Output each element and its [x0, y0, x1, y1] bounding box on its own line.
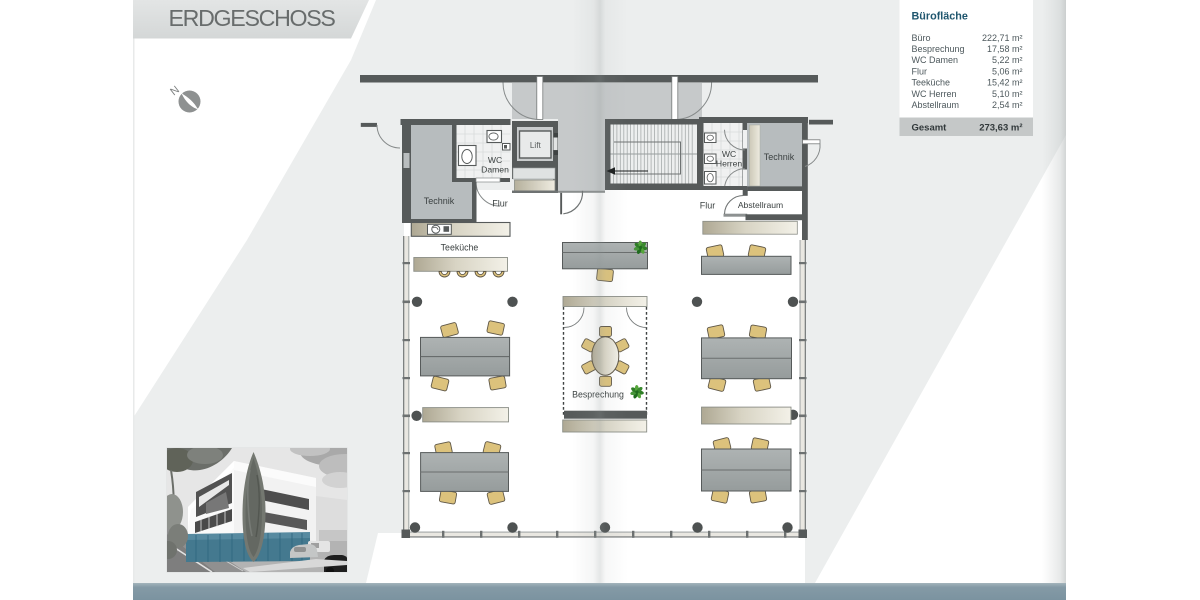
svg-text:5,06 m²: 5,06 m² — [992, 66, 1023, 76]
svg-text:Abstellraum: Abstellraum — [912, 100, 960, 110]
svg-text:ERDGESCHOSS: ERDGESCHOSS — [169, 5, 336, 31]
svg-text:5,22 m²: 5,22 m² — [992, 55, 1023, 65]
svg-text:2,54 m²: 2,54 m² — [992, 100, 1023, 110]
svg-text:17,58 m²: 17,58 m² — [987, 44, 1023, 54]
svg-text:Herren: Herren — [716, 159, 742, 169]
svg-text:Büro: Büro — [912, 33, 931, 43]
svg-text:273,63 m²: 273,63 m² — [979, 123, 1022, 134]
svg-text:Flur: Flur — [912, 66, 928, 76]
svg-text:Damen: Damen — [481, 165, 509, 175]
svg-text:Besprechung: Besprechung — [912, 44, 965, 54]
svg-text:Technik: Technik — [764, 152, 795, 162]
svg-text:Flur: Flur — [492, 199, 508, 209]
svg-text:15,42 m²: 15,42 m² — [987, 78, 1023, 88]
svg-text:Lift: Lift — [530, 141, 542, 150]
svg-text:5,10 m²: 5,10 m² — [992, 89, 1023, 99]
svg-text:222,71 m²: 222,71 m² — [982, 33, 1023, 43]
svg-text:Abstellraum: Abstellraum — [738, 200, 783, 210]
svg-text:WC: WC — [488, 155, 502, 165]
svg-text:Bürofläche: Bürofläche — [912, 10, 968, 22]
svg-text:Teeküche: Teeküche — [912, 78, 951, 88]
svg-text:Gesamt: Gesamt — [912, 123, 948, 134]
svg-text:Technik: Technik — [424, 196, 455, 206]
svg-text:WC Herren: WC Herren — [912, 89, 957, 99]
svg-text:WC Damen: WC Damen — [912, 55, 959, 65]
svg-text:Teeküche: Teeküche — [441, 243, 479, 253]
svg-text:WC: WC — [722, 149, 736, 159]
svg-text:Flur: Flur — [700, 201, 716, 211]
